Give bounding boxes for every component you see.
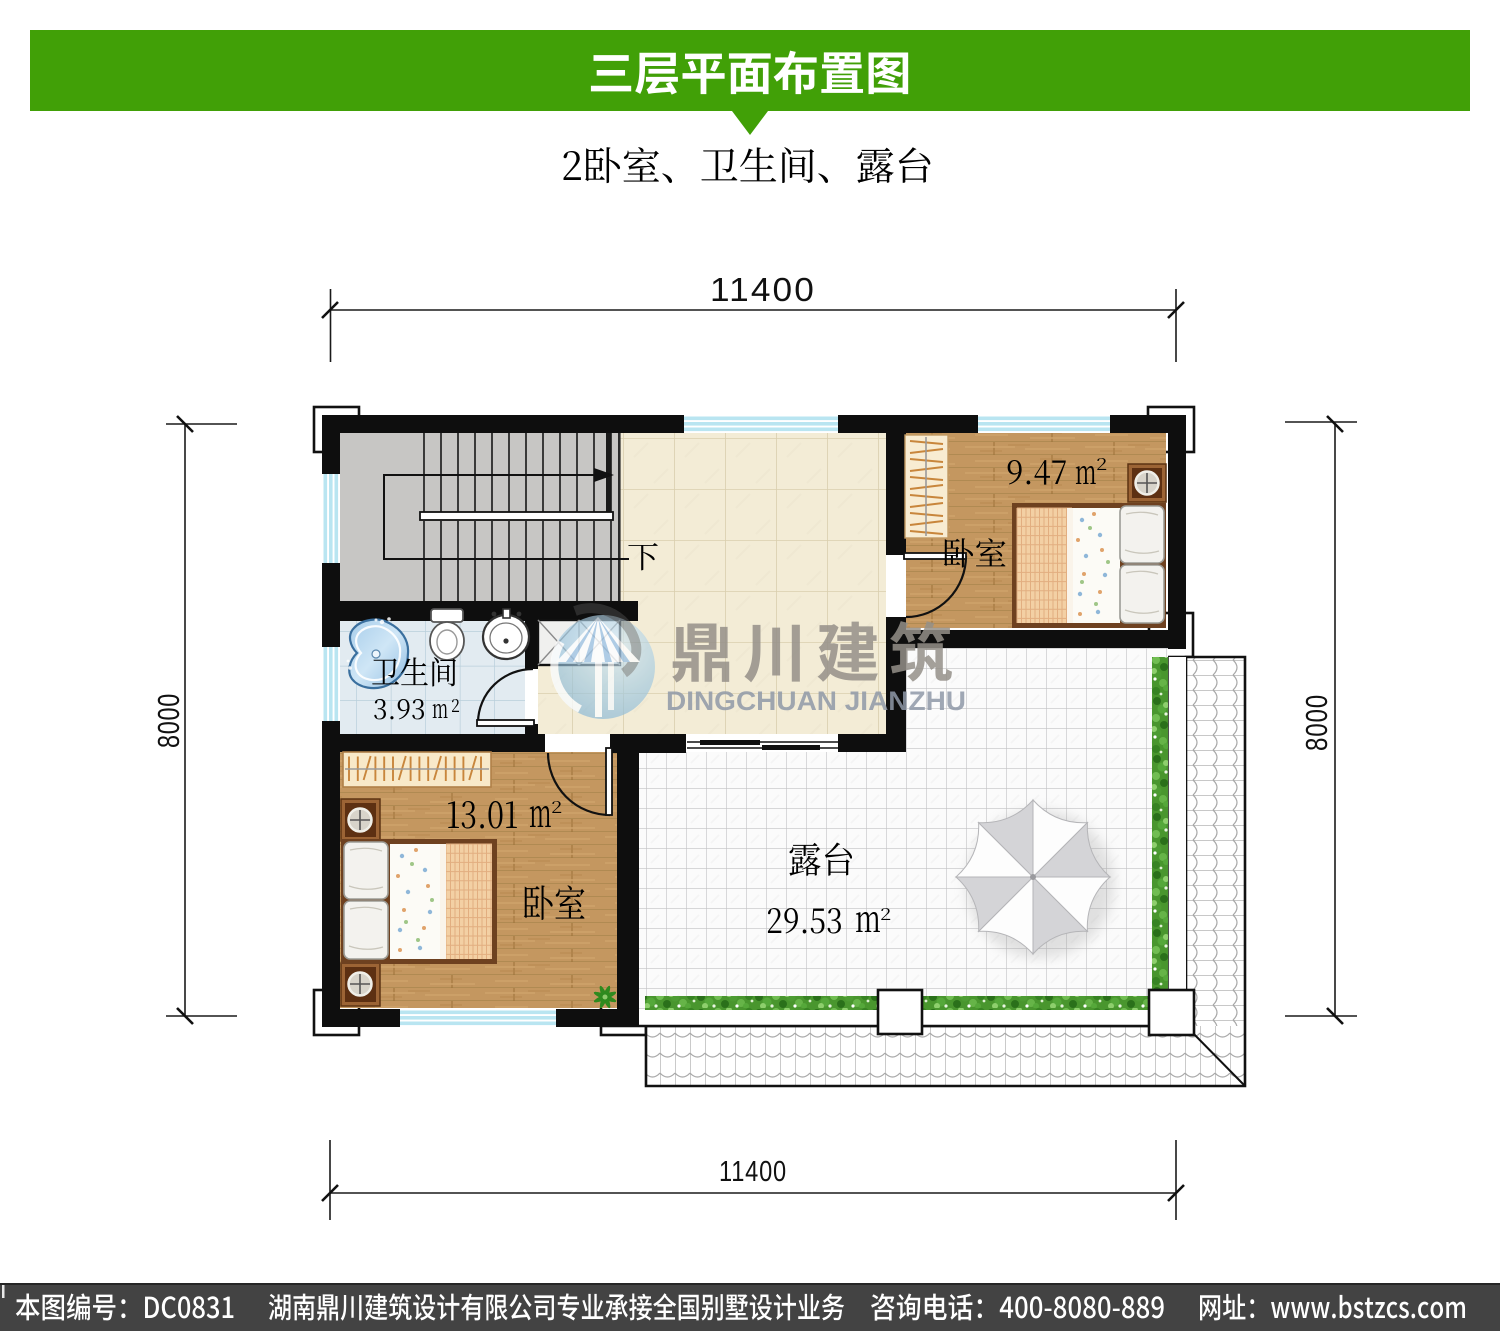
svg-text:8000: 8000 [151,693,186,748]
svg-text:DINGCHUAN JIANZHU: DINGCHUAN JIANZHU [666,686,966,716]
svg-text:11400: 11400 [710,271,816,308]
svg-text:11400: 11400 [719,1156,787,1188]
svg-text:8000: 8000 [1299,694,1334,751]
